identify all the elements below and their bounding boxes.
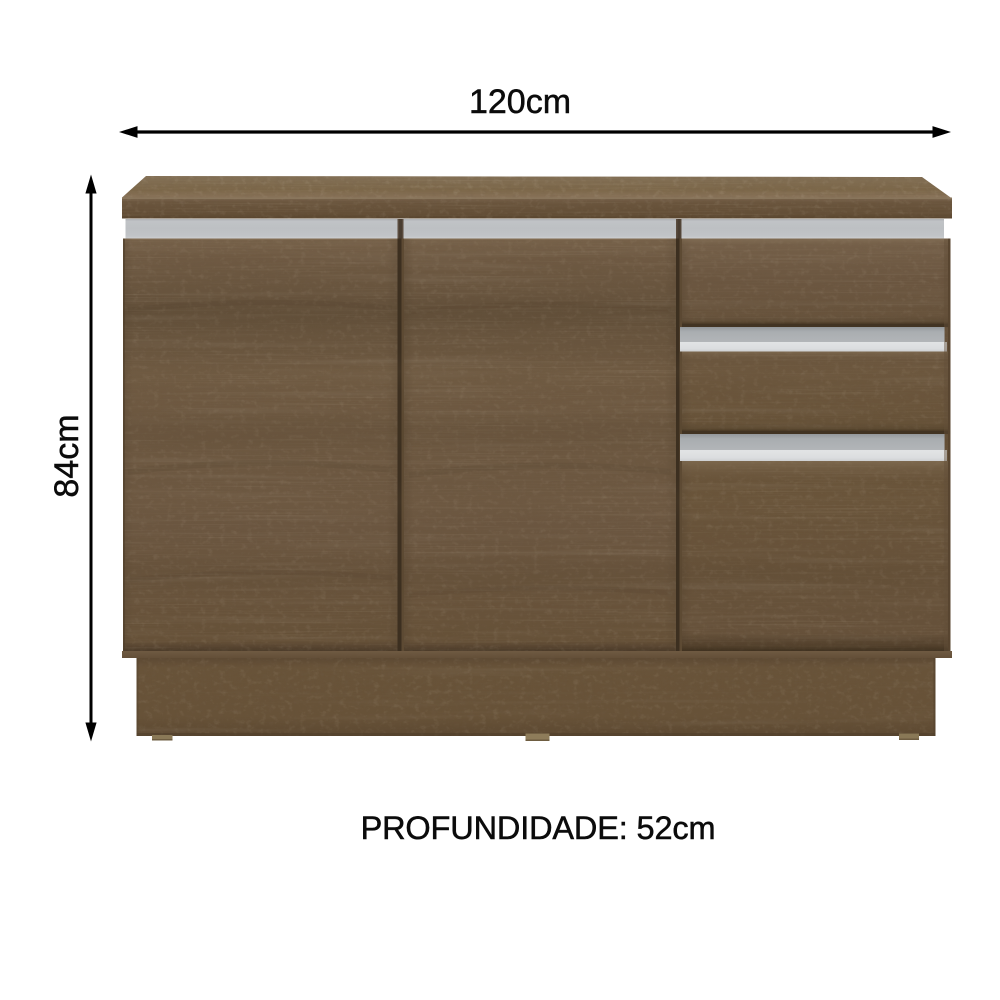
svg-text:PROFUNDIDADE: 52cm: PROFUNDIDADE: 52cm [361, 810, 716, 846]
svg-text:120cm: 120cm [469, 83, 571, 121]
svg-text:84cm: 84cm [48, 414, 86, 497]
